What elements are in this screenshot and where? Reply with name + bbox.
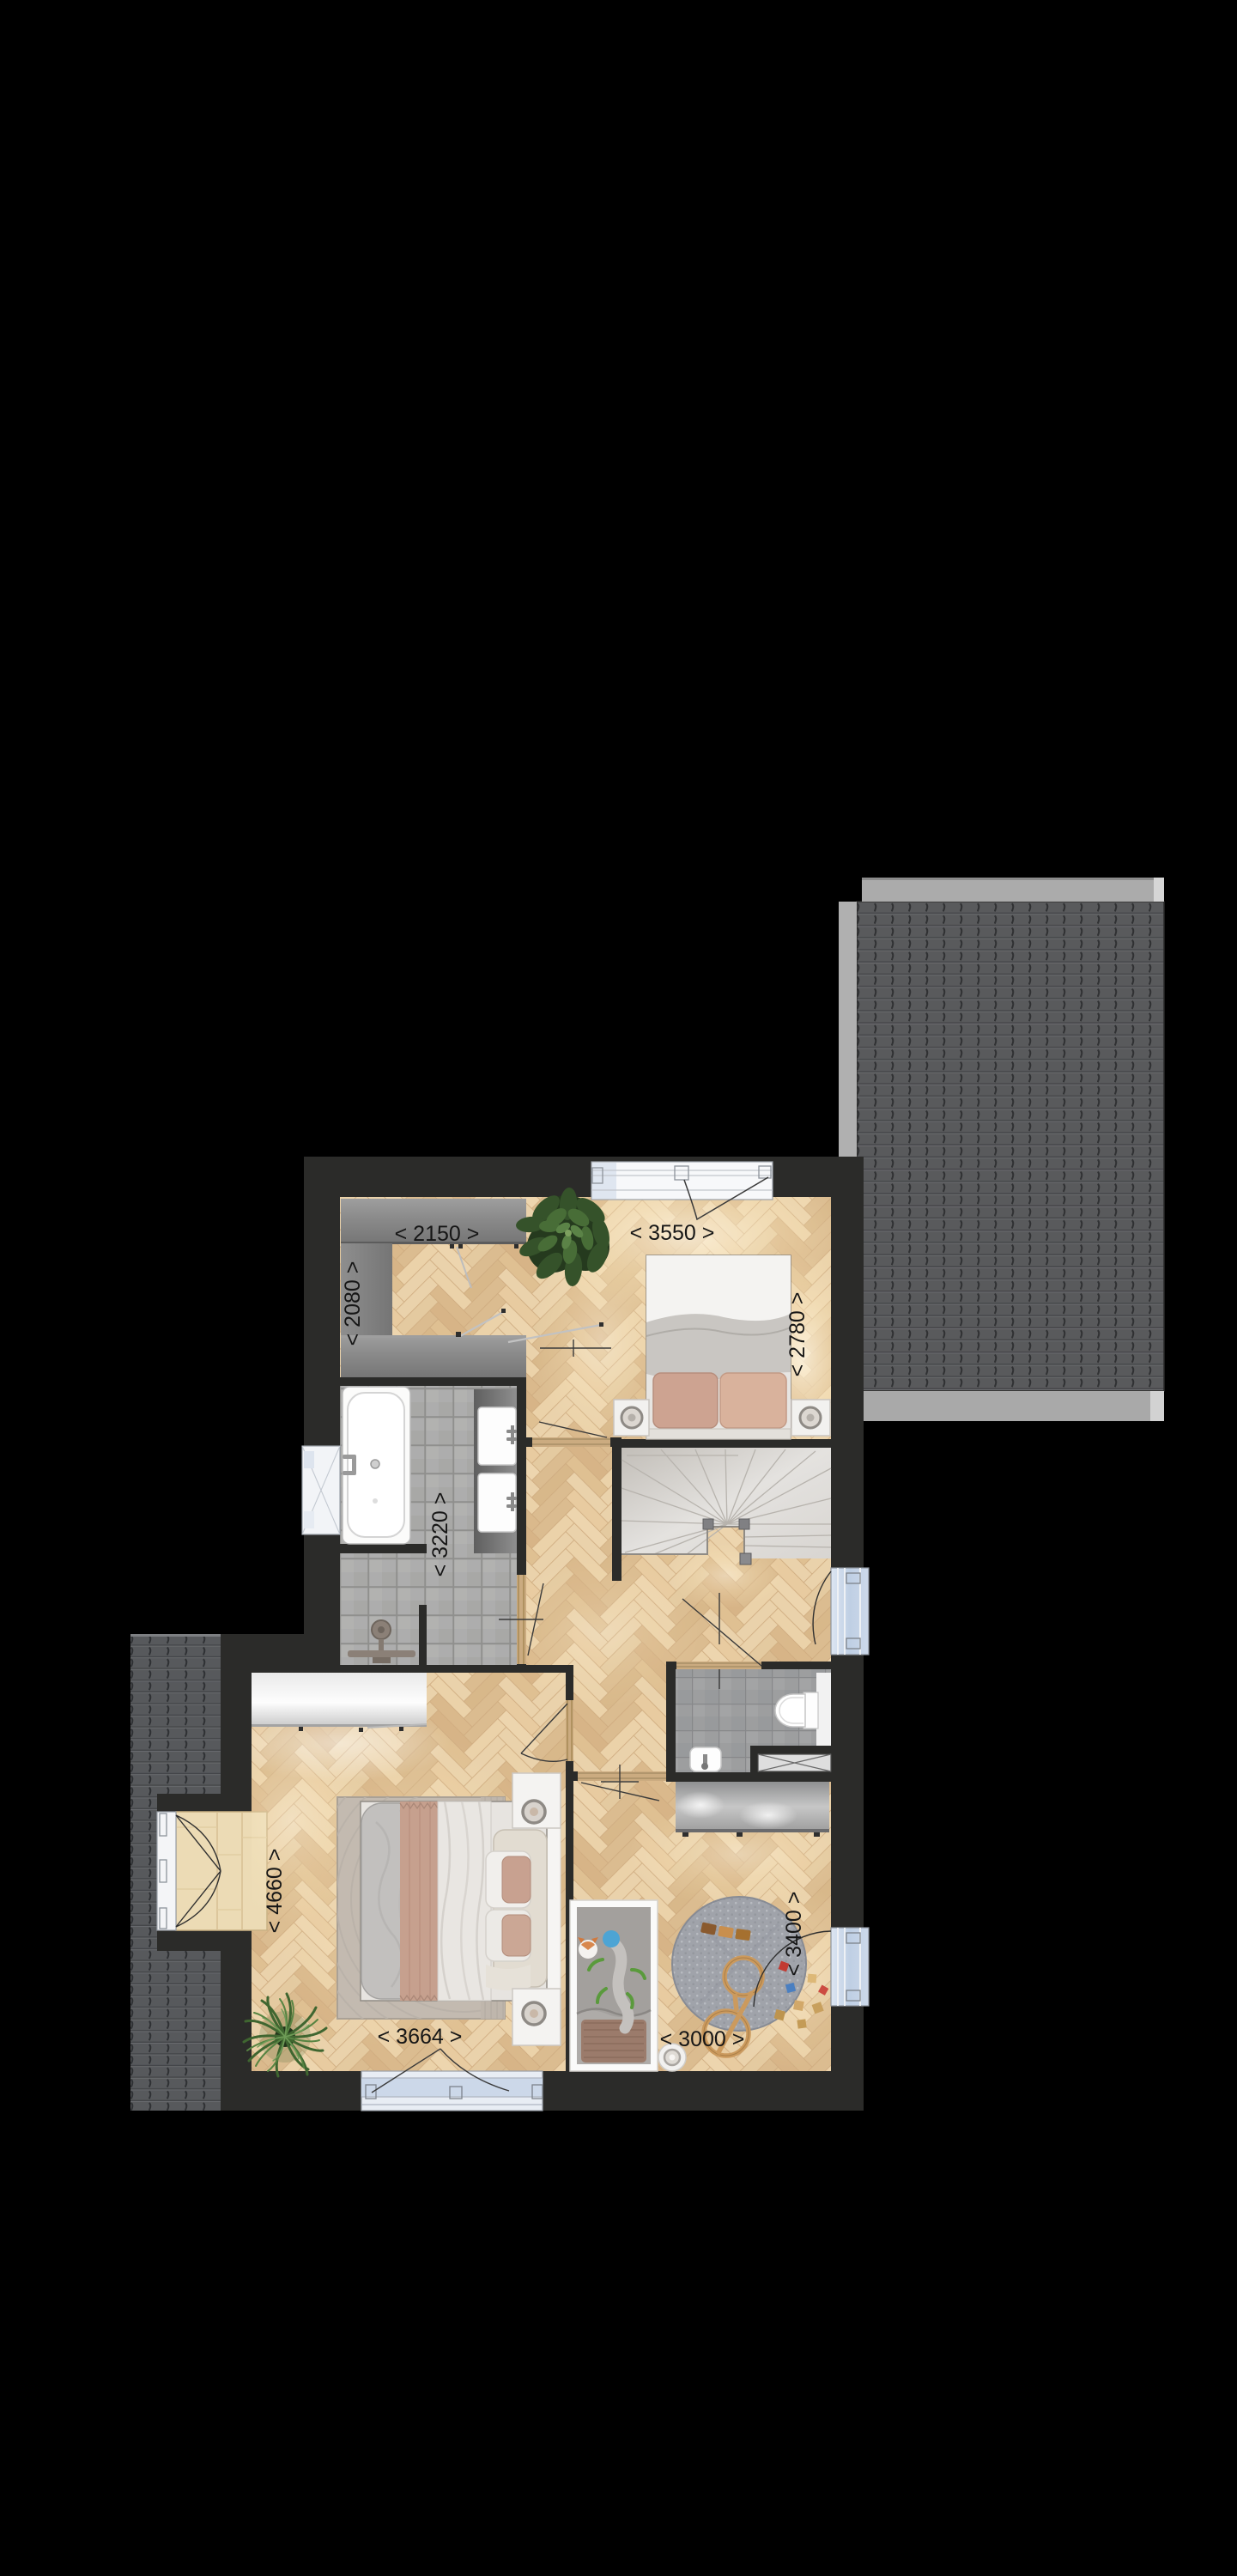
svg-text:< 2150 >: < 2150 > xyxy=(395,1222,480,1246)
svg-text:< 3000 >: < 3000 > xyxy=(660,2027,745,2051)
svg-text:< 2780 >: < 2780 > xyxy=(785,1292,810,1377)
svg-text:< 3550 >: < 3550 > xyxy=(630,1221,715,1245)
svg-text:< 3220 >: < 3220 > xyxy=(428,1492,452,1577)
svg-text:< 3400 >: < 3400 > xyxy=(782,1892,806,1977)
svg-text:< 2080 >: < 2080 > xyxy=(341,1261,365,1346)
svg-text:< 3664 >: < 3664 > xyxy=(378,2025,463,2049)
svg-text:< 4660 >: < 4660 > xyxy=(263,1849,287,1934)
